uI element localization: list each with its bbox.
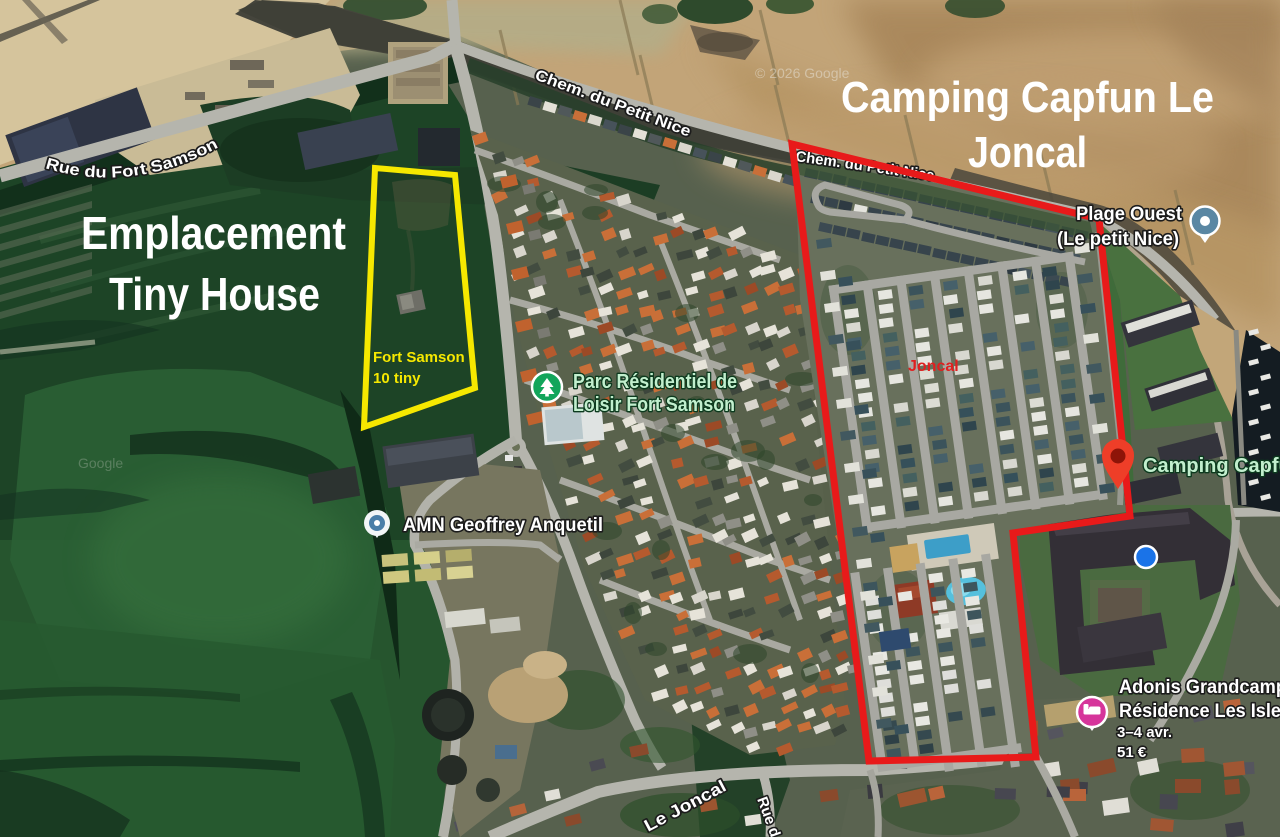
svg-text:Plage Ouest: Plage Ouest: [1076, 204, 1183, 225]
svg-text:Loisir Fort Samson: Loisir Fort Samson: [573, 394, 735, 416]
svg-text:51 €: 51 €: [1117, 744, 1147, 761]
svg-text:Camping Capfun: Camping Capfun: [1143, 455, 1280, 477]
svg-text:Camping Capfun Le: Camping Capfun Le: [841, 73, 1214, 122]
svg-text:Adonis Grandcamp: Adonis Grandcamp: [1119, 677, 1280, 698]
svg-text:Emplacement: Emplacement: [81, 207, 346, 259]
svg-text:Tiny House: Tiny House: [109, 268, 320, 320]
svg-text:AMN Geoffrey Anquetil: AMN Geoffrey Anquetil: [403, 515, 603, 536]
svg-text:(Le petit Nice): (Le petit Nice): [1057, 229, 1179, 250]
svg-text:3–4 avr.: 3–4 avr.: [1117, 724, 1172, 741]
svg-text:Fort Samson: Fort Samson: [373, 349, 465, 366]
svg-text:Joncal: Joncal: [908, 358, 959, 375]
svg-text:Google: Google: [78, 455, 123, 471]
svg-text:Parc Résidentiel de: Parc Résidentiel de: [573, 371, 737, 393]
svg-text:© 2026 Google: © 2026 Google: [755, 65, 850, 81]
svg-text:Résidence Les Isles: Résidence Les Isles: [1119, 701, 1280, 722]
svg-text:10 tiny: 10 tiny: [373, 370, 421, 387]
svg-text:Joncal: Joncal: [968, 128, 1087, 177]
